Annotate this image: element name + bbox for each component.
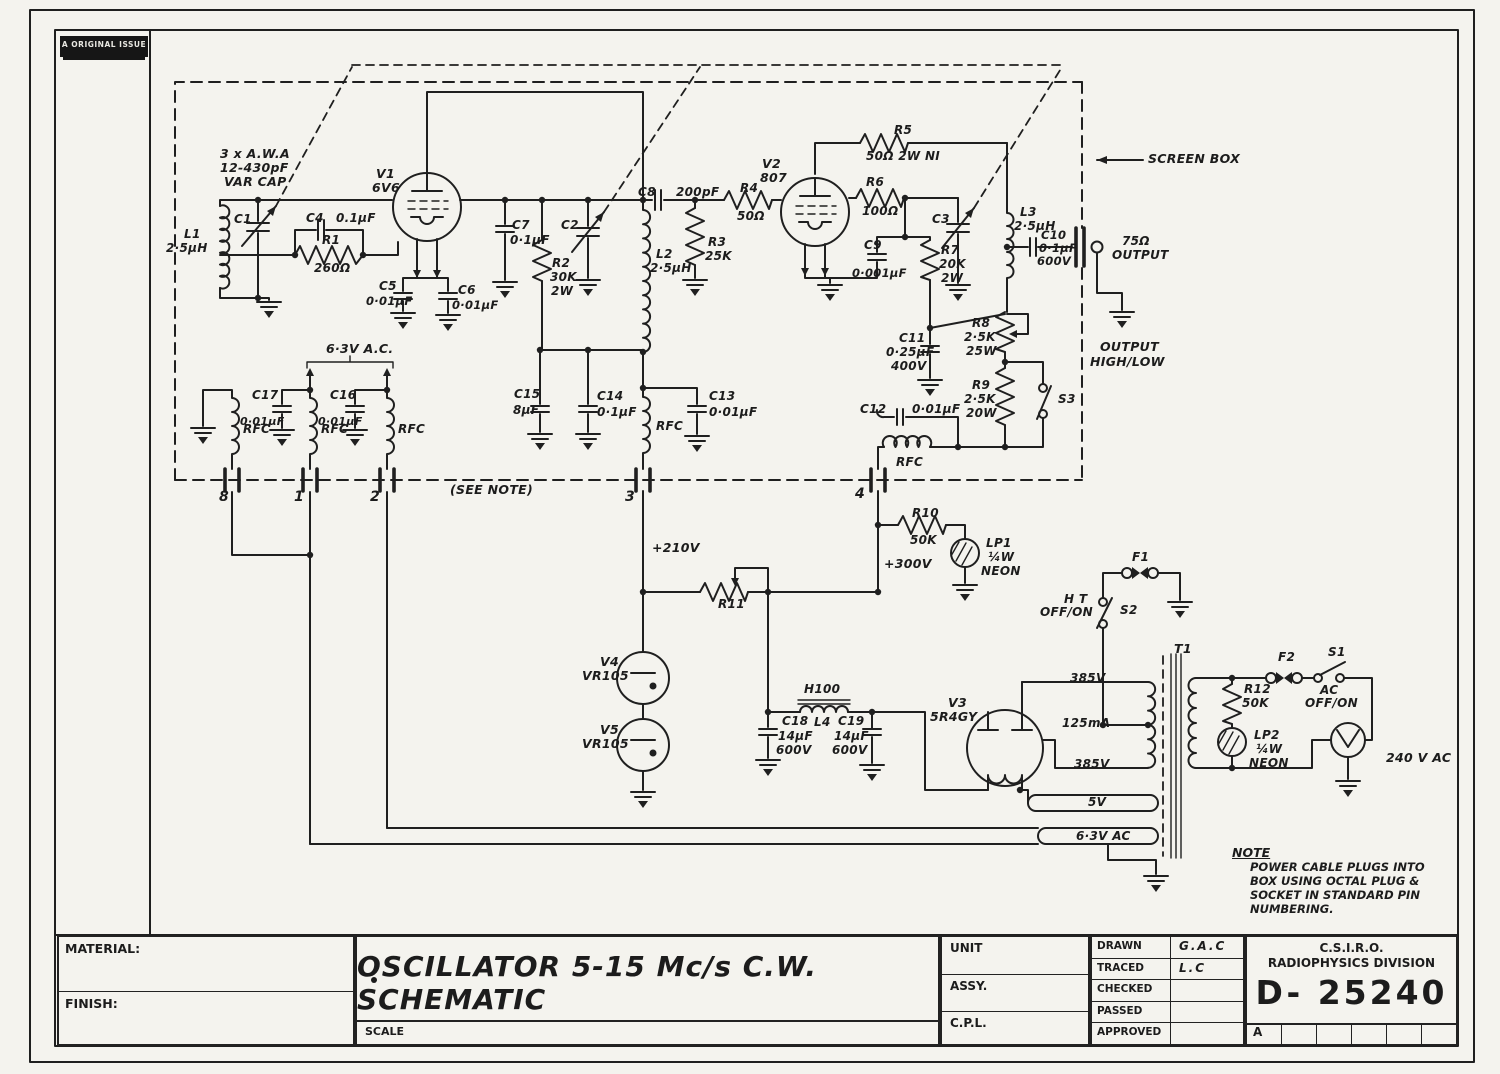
titleblock-sign-row: APPROVED	[1092, 1023, 1243, 1044]
note-block: NOTE POWER CABLE PLUGS INTOBOX USING OCT…	[1232, 845, 1450, 916]
titleblock-org-box: C.S.I.R.O. RADIOPHYSICS DIVISION D- 2524…	[1245, 935, 1458, 1046]
sign-value: G.A.C	[1171, 937, 1243, 958]
ground-symbols	[191, 280, 1360, 892]
titleblock-signatures: DRAWNG.A.CTRACEDL.CCHECKEDPASSEDAPPROVED	[1090, 935, 1245, 1046]
revision-cell	[1317, 1025, 1352, 1044]
titleblock-title-box: OSCILLATOR 5-15 Mc/s C.W. SCHEMATIC SCAL…	[355, 935, 940, 1046]
tube-v3	[967, 682, 1043, 803]
output-divider	[996, 312, 1051, 447]
revision-cell: A	[1247, 1025, 1282, 1044]
tube-v1	[393, 92, 643, 313]
note-lines: POWER CABLE PLUGS INTOBOX USING OCTAL PL…	[1232, 860, 1450, 916]
note-line: BOX USING OCTAL PLUG &	[1250, 874, 1450, 888]
power-filter	[759, 592, 988, 790]
transformer-t1	[310, 628, 1196, 874]
ht-switch	[1097, 567, 1180, 628]
scale-label: SCALE	[357, 1020, 938, 1044]
titleblock-sign-row: DRAWNG.A.C	[1092, 937, 1243, 959]
assy-label: ASSY.	[942, 974, 1088, 1011]
junction-dots	[255, 195, 1235, 793]
mains-circuit	[1196, 662, 1372, 779]
regulator-chain	[617, 491, 878, 790]
keying-line	[877, 409, 1005, 592]
sign-label: APPROVED	[1092, 1023, 1171, 1044]
unit-label: UNIT	[942, 937, 1088, 974]
org-line2: RADIOPHYSICS DIVISION	[1247, 956, 1456, 971]
original-issue-stamp: A ORIGINAL ISSUE	[60, 36, 148, 57]
sign-value	[1171, 1002, 1243, 1023]
v1-output-network	[460, 190, 781, 469]
v2-bias-network	[830, 198, 1005, 378]
cpl-label: C.P.L.	[942, 1011, 1088, 1048]
tank-circuit	[220, 200, 398, 300]
sign-value: L.C	[1171, 959, 1243, 980]
note-heading: NOTE	[1232, 845, 1450, 860]
sign-label: DRAWN	[1092, 937, 1171, 958]
sign-label: CHECKED	[1092, 980, 1171, 1001]
revision-cell	[1282, 1025, 1317, 1044]
drawing-sheet: 3 x A.W.A12-430pFVAR CAPV16V6L12·5μHC1C4…	[0, 0, 1500, 1074]
revision-cell	[1422, 1025, 1456, 1044]
drawing-title: OSCILLATOR 5-15 Mc/s C.W. SCHEMATIC	[357, 945, 938, 1021]
note-line: SOCKET IN STANDARD PIN	[1250, 888, 1450, 902]
note-line: NUMBERING.	[1250, 902, 1450, 916]
revision-cell	[1387, 1025, 1422, 1044]
titleblock-material-box: MATERIAL: FINISH:	[57, 935, 355, 1046]
note-line: POWER CABLE PLUGS INTO	[1250, 860, 1450, 874]
revision-strip: A	[1247, 1023, 1456, 1044]
titleblock-sign-row: TRACEDL.C	[1092, 959, 1243, 981]
sign-label: PASSED	[1092, 1002, 1171, 1023]
tuning-gang-line	[276, 65, 1065, 212]
material-label: MATERIAL:	[59, 937, 353, 991]
output-tank	[1007, 143, 1143, 312]
revision-cell	[1352, 1025, 1387, 1044]
titleblock-sign-row: CHECKED	[1092, 980, 1243, 1002]
finish-label: FINISH:	[59, 991, 353, 1045]
org-line1: C.S.I.R.O.	[1247, 941, 1456, 956]
sign-value	[1171, 980, 1243, 1001]
titleblock-unit-box: UNIT ASSY. C.P.L.	[940, 935, 1090, 1046]
sign-value	[1171, 1023, 1243, 1044]
sign-label: TRACED	[1092, 959, 1171, 980]
drawing-number: D- 25240	[1247, 973, 1456, 1012]
titleblock-sign-row: PASSED	[1092, 1002, 1243, 1024]
